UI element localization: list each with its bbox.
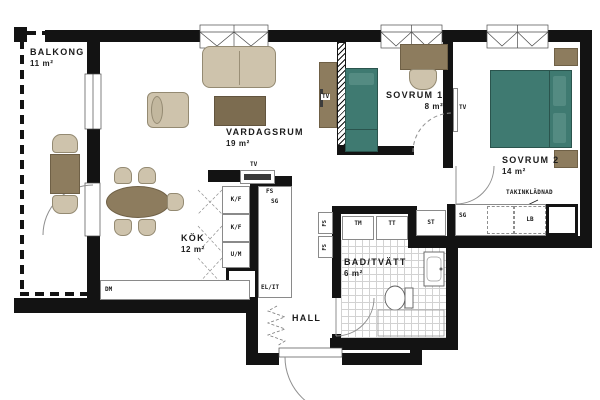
wall-bath-right [446, 236, 458, 350]
tumble-dryer: TT [376, 216, 408, 240]
tv-shelf-sovrum2 [453, 88, 458, 132]
wall-bath-left-lower [332, 334, 341, 350]
wall-balcony-divider-b [87, 128, 100, 184]
room-name-hall: HALL [292, 312, 321, 325]
wall-bath-left-upper [332, 206, 341, 298]
room-name-vardagsrum: VARDAGSRUM [226, 126, 304, 139]
tv-bench [240, 170, 275, 184]
room-area-kok: 12 m² [181, 245, 205, 254]
sg-kitchen-label: SG [271, 199, 278, 205]
sofa [202, 46, 276, 88]
fs-hall-lower-label: FS [323, 244, 329, 251]
balcony-railing-left [20, 40, 24, 294]
dining-chair [138, 167, 156, 184]
window-balcony-wall [85, 74, 101, 129]
fs-kitchen-label: FS [266, 189, 273, 195]
room-name-kok: KÖK [181, 232, 205, 245]
bed-pillow [553, 76, 566, 106]
coffee-table [214, 96, 266, 126]
desk-sovrum1 [400, 44, 448, 70]
bed-pillow [553, 113, 566, 143]
balcony-railing-bottom [20, 292, 88, 296]
entrance-door [279, 348, 342, 400]
wall-sovrum2-door-post [447, 204, 455, 238]
sovrum2-door [456, 166, 494, 204]
washer-label: TM [354, 221, 361, 227]
dining-table [106, 186, 170, 218]
room-name-sovrum1: SOVRUM 1 [386, 89, 443, 102]
room-name-balkong: BALKONG [30, 46, 85, 59]
room-name-sovrum2: SOVRUM 2 [502, 154, 559, 167]
wall-bath-connector [410, 338, 422, 365]
coat-hooks [268, 306, 285, 346]
bathroom-tile-floor [341, 240, 446, 338]
room-area-sovrum2: 14 m² [502, 167, 559, 176]
st-closet: ST [416, 210, 446, 236]
bed-sovrum1 [345, 68, 378, 152]
dining-chair [114, 167, 132, 184]
room-label-hall: HALL [292, 312, 321, 325]
armchair [147, 92, 189, 128]
room-area-balkong: 11 m² [30, 59, 85, 68]
fs-hall-cabinet-lower: FS [318, 236, 333, 258]
fs-hall-cabinet-upper: FS [318, 212, 333, 234]
right-shaft [546, 204, 578, 236]
oven-micro-cabinet: U/M [222, 242, 250, 268]
bed-pillow [349, 73, 374, 85]
washing-machine: TM [342, 216, 374, 240]
wall-bath-bottom [330, 338, 458, 350]
sofa-cushion-divider [239, 51, 240, 85]
sg-wardrobe-label: SG [459, 213, 466, 219]
bed-headboard-line [549, 71, 550, 147]
dining-chair [114, 219, 132, 236]
fs-hall-upper-label: FS [323, 220, 329, 227]
wall-closets-bottom [408, 236, 592, 248]
fridge-freezer-2-label: K/F [231, 225, 242, 231]
room-label-kok: KÖK 12 m² [181, 232, 205, 254]
tv-screen-livingroom [244, 174, 271, 180]
balcony-railing-top [27, 31, 45, 35]
room-area-sovrum1: 8 m² [386, 102, 443, 111]
wall-bath-top [332, 206, 416, 214]
kitchen-counter [100, 280, 250, 300]
lb-closet: LB [514, 206, 546, 234]
tv-label-wall-unit: TV [321, 94, 330, 100]
bed-sovrum2 [490, 70, 572, 148]
wall-hall-bottom-left [246, 353, 279, 365]
ceiling-note-label: TAKINKLÄDNAD [506, 190, 553, 196]
floor-plan: K/F K/F U/M DM FS SG EL/IT TM TT FS FS S… [0, 0, 600, 400]
room-label-sovrum1: SOVRUM 1 8 m² [386, 89, 443, 111]
nightstand-top [554, 48, 578, 66]
room-label-vardagsrum: VARDAGSRUM 19 m² [226, 126, 304, 148]
fridge-freezer-1: K/F [222, 186, 250, 214]
room-area-bad: 6 m² [344, 269, 407, 278]
el-it-label: EL/IT [261, 285, 279, 291]
tv-label-sovrum2: TV [459, 105, 466, 111]
armchair-backrest [151, 96, 163, 124]
dining-chair [138, 219, 156, 236]
room-name-bad: BAD/TVÄTT [344, 256, 407, 269]
wall-balcony-divider-a [87, 42, 100, 75]
wall-right [580, 30, 592, 248]
wall-top [45, 30, 592, 42]
fridge-freezer-1-label: K/F [231, 197, 242, 203]
desk-chair [409, 69, 437, 90]
wall-balcony-divider-c [87, 235, 100, 300]
oven-micro-label: U/M [231, 252, 242, 258]
tv-label-livingroom: TV [250, 162, 257, 168]
room-label-bad: BAD/TVÄTT 6 m² [344, 256, 407, 278]
balcony-chair-top [52, 134, 78, 153]
dishwasher-label: DM [105, 287, 112, 293]
dryer-label: TT [388, 221, 395, 227]
fridge-freezer-2: K/F [222, 214, 250, 242]
wall-bottom-main [14, 298, 258, 313]
bed-fold-line [346, 129, 377, 130]
balcony-chair-bottom [52, 195, 78, 214]
dining-chair [167, 193, 184, 211]
room-label-sovrum2: SOVRUM 2 14 m² [502, 154, 559, 176]
lb-closet-label: LB [526, 217, 533, 223]
st-closet-label: ST [427, 220, 434, 226]
ceiling-clad-zone [487, 206, 514, 234]
room-area-vardagsrum: 19 m² [226, 139, 304, 148]
balcony-table [50, 154, 80, 194]
room-label-balkong: BALKONG 11 m² [30, 46, 85, 68]
